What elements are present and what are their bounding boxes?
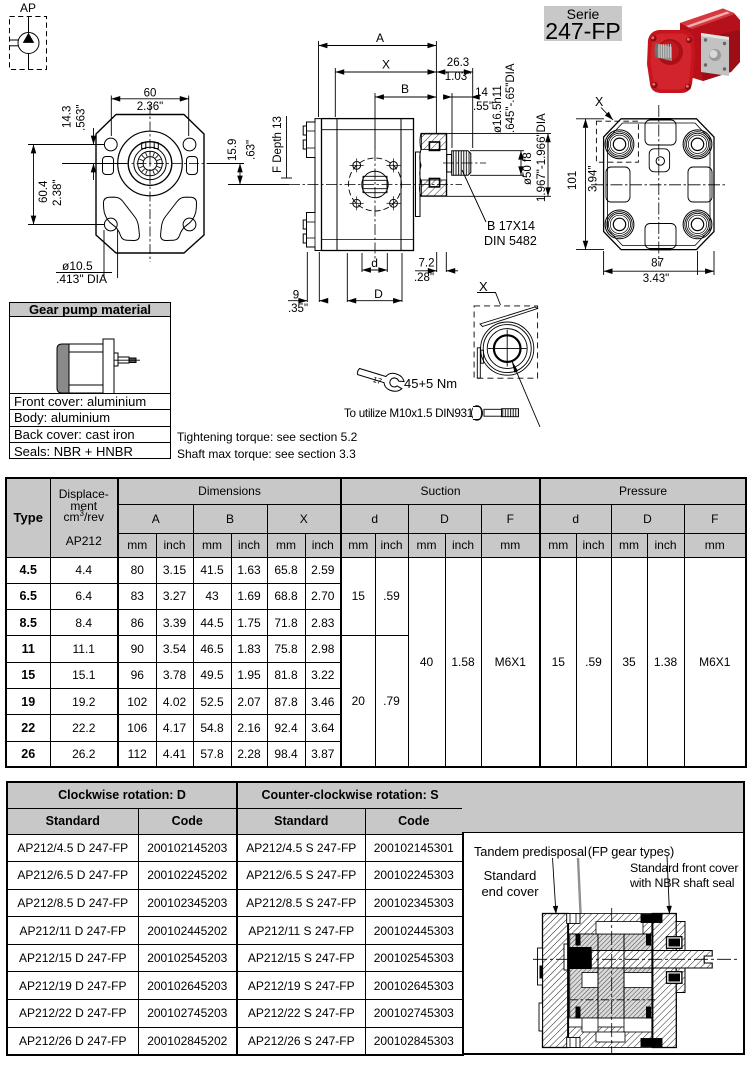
svg-text:d: d xyxy=(371,256,378,270)
svg-text:7.2: 7.2 xyxy=(419,258,435,270)
svg-text:45+5 Nm: 45+5 Nm xyxy=(404,376,457,391)
svg-text:X: X xyxy=(595,95,604,109)
svg-text:B 17X14: B 17X14 xyxy=(487,219,535,233)
svg-text:AP: AP xyxy=(20,1,36,15)
svg-text:.55": .55" xyxy=(473,101,493,113)
svg-text:14.3: 14.3 xyxy=(62,106,74,128)
svg-text:15.9: 15.9 xyxy=(227,139,239,161)
svg-text:9: 9 xyxy=(293,290,299,302)
svg-text:17: 17 xyxy=(372,375,384,386)
svg-text:60: 60 xyxy=(144,88,157,100)
svg-text:1.03": 1.03" xyxy=(445,71,471,83)
svg-text:ø10.5: ø10.5 xyxy=(62,259,93,273)
svg-text:D: D xyxy=(374,287,383,301)
svg-text:.563": .563" xyxy=(76,105,88,131)
svg-text:2.36": 2.36" xyxy=(137,101,163,113)
svg-text:1.967"-1.966"DIA: 1.967"-1.966"DIA xyxy=(536,113,548,202)
svg-text:X: X xyxy=(479,279,488,294)
svg-text:87: 87 xyxy=(651,258,664,270)
svg-text:3.94": 3.94" xyxy=(588,166,600,192)
svg-text:F Depth 13: F Depth 13 xyxy=(272,116,284,173)
svg-text:X: X xyxy=(382,58,390,72)
svg-text:3.43": 3.43" xyxy=(643,273,669,285)
svg-text:26.3: 26.3 xyxy=(447,57,469,69)
svg-text:ø50 f8: ø50 f8 xyxy=(522,152,534,185)
svg-text:.645"-.65"DIA: .645"-.65"DIA xyxy=(505,63,517,133)
svg-text:To utilize M10x1.5 DIN931: To utilize M10x1.5 DIN931 xyxy=(344,407,473,420)
svg-text:.35": .35" xyxy=(288,303,308,315)
svg-text:ø16.5h11: ø16.5h11 xyxy=(492,85,504,133)
svg-text:.63": .63" xyxy=(246,140,258,160)
svg-text:.413" DIA: .413" DIA xyxy=(56,272,107,286)
svg-text:B: B xyxy=(401,82,409,96)
svg-text:DIN 5482: DIN 5482 xyxy=(484,234,537,248)
svg-text:101: 101 xyxy=(567,171,579,190)
svg-text:.28": .28" xyxy=(414,272,434,284)
svg-text:A: A xyxy=(376,31,384,45)
svg-text:60.4: 60.4 xyxy=(38,180,50,203)
svg-text:2.38": 2.38" xyxy=(52,180,64,206)
